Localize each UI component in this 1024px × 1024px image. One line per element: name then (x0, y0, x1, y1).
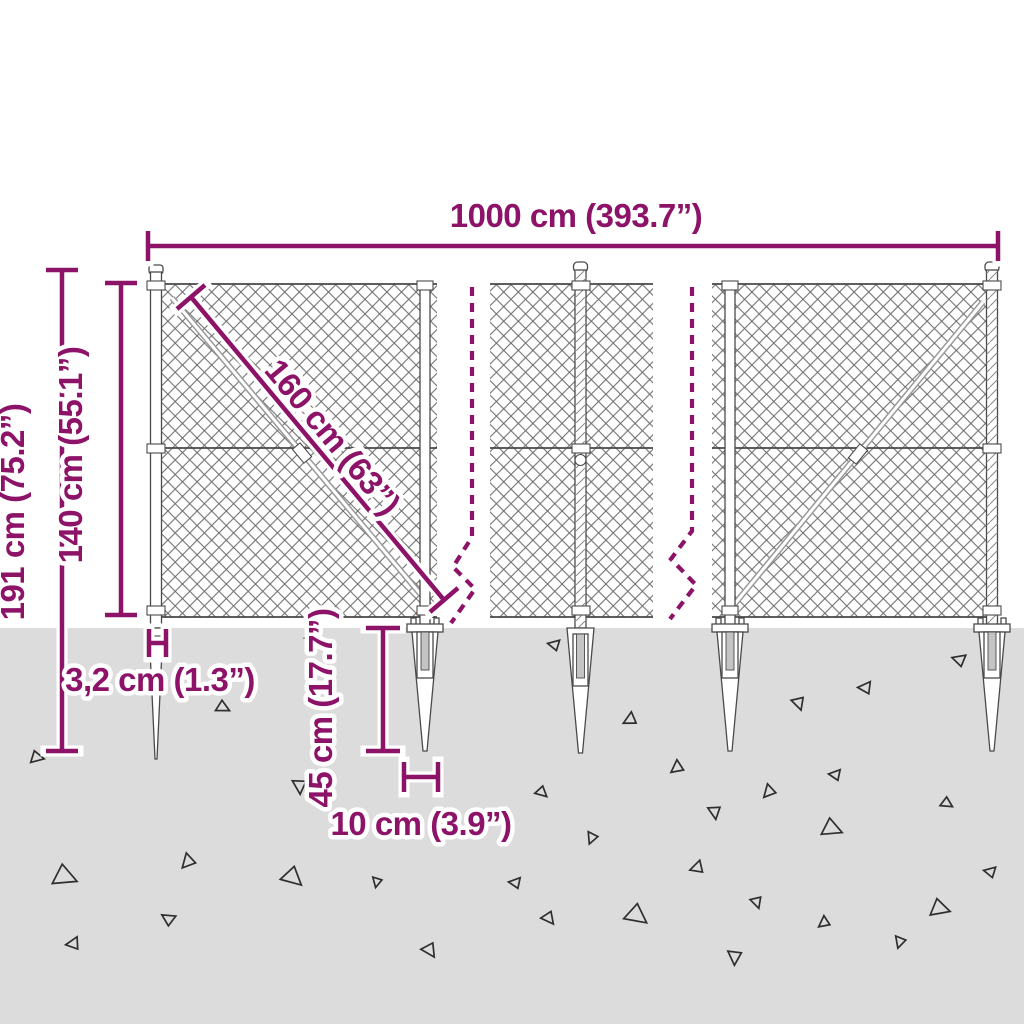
dim-spike-depth-label: 45 cm (17.7”) (302, 609, 339, 808)
dim-total-width-line (148, 231, 998, 261)
diagram-canvas: 1000 cm (393.7”) 191 cm (75.2”) 140 cm (… (0, 0, 1024, 1024)
fence-panel-3 (712, 284, 990, 617)
fence-dimension-diagram: 1000 cm (393.7”) 191 cm (75.2”) 140 cm (… (0, 0, 1024, 1024)
fence-panel-1 (160, 284, 437, 617)
dim-post-thickness-label: 3,2 cm (1.3”) (65, 661, 255, 698)
dim-total-width (148, 231, 998, 261)
dim-fence-height (105, 283, 137, 615)
break-line-left (451, 287, 475, 623)
dim-fence-height-label: 140 cm (55.1”) (52, 347, 89, 564)
dim-total-height-label: 191 cm (75.2”) (0, 404, 31, 621)
dim-spike-width-label: 10 cm (3.9”) (330, 805, 511, 842)
post-4 (722, 281, 738, 628)
dim-fence-height-line (105, 283, 137, 615)
break-line-right (670, 287, 696, 619)
mesh-panel (712, 284, 990, 617)
dim-total-width-label: 1000 cm (393.7”) (450, 197, 703, 234)
